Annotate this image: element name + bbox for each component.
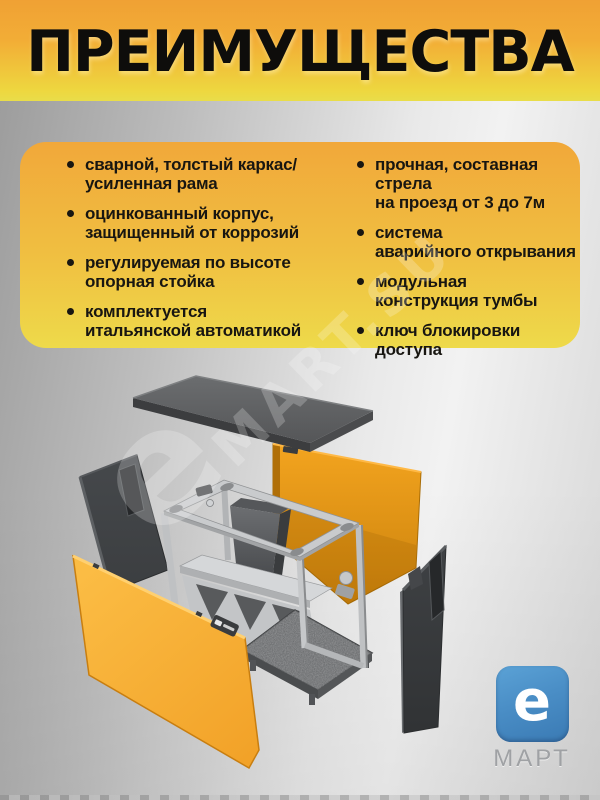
top-cover-panel (133, 376, 373, 452)
right-side-panel (400, 546, 446, 733)
brand-logo: e МАРТ (493, 666, 571, 773)
poster: ПРЕИМУЩЕСТВА сварной, толстый каркас/ ус… (0, 0, 600, 800)
logo-e-icon: e (513, 674, 551, 734)
front-panel (73, 556, 259, 768)
bottom-edge-artifact (0, 795, 600, 800)
logo-name: МАРТ (493, 745, 571, 773)
logo-badge: e (496, 666, 569, 742)
